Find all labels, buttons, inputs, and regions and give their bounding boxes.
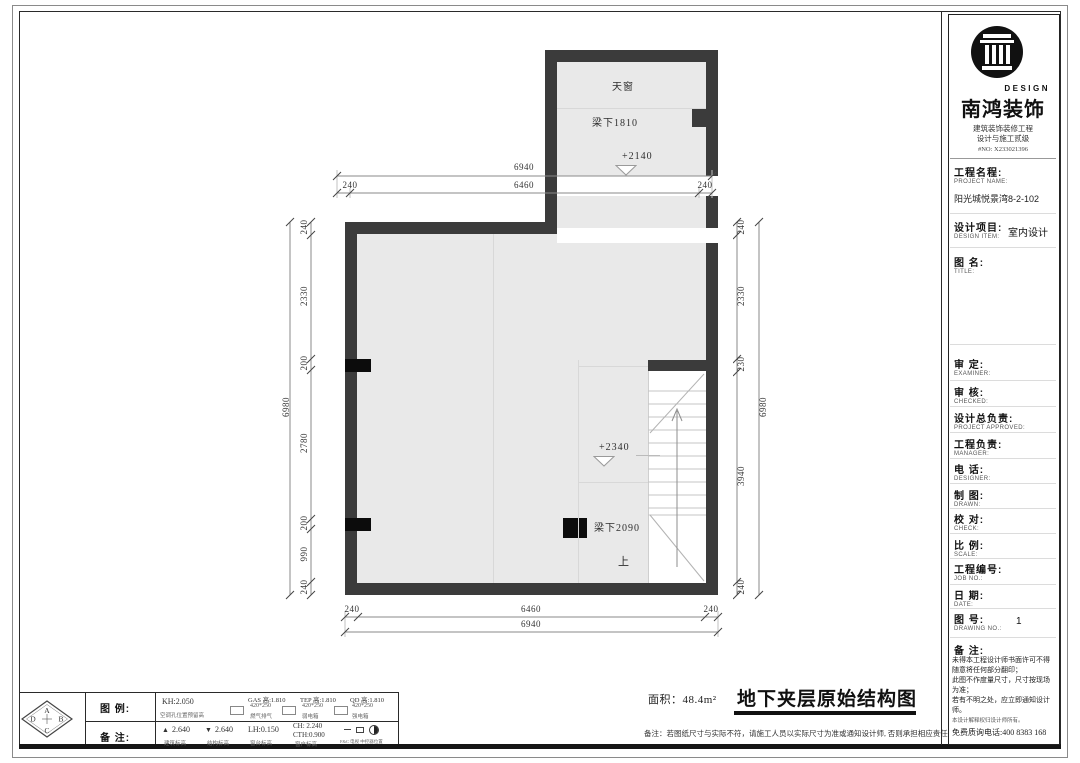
dim-right-seg: 2330 — [736, 276, 746, 316]
wall-right — [706, 50, 718, 595]
remarks-fine-print: 本设计解释权归设计师所有。 — [952, 716, 1024, 724]
dim-top-seg: 240 — [330, 180, 370, 190]
tb-label: 电 话: — [954, 461, 1054, 476]
legend-top-line — [19, 692, 398, 693]
titleblock-separator — [950, 637, 1056, 638]
level-down-icon: ▼ — [205, 726, 212, 734]
tb-row-check: 校 对: CHECK: — [954, 511, 1054, 532]
tb-sub: EXAMINER: — [954, 371, 1054, 377]
tb-row-project: 工程名程: PROJECT NAME: — [954, 164, 1054, 185]
legend-item-gas-sub: 燃气排气 — [250, 712, 272, 720]
legend-item-lvl2-sub: 结构标高 — [207, 739, 229, 747]
tb-sub: TITLE: — [954, 269, 1054, 275]
titleblock-separator — [950, 247, 1056, 248]
legend-v2 — [155, 692, 156, 744]
legend-row2-label: 备 注: — [100, 729, 130, 744]
legend-item-qd-sub: 强电箱 — [352, 712, 369, 720]
level-marker-icon — [593, 456, 615, 467]
column-block-2 — [345, 518, 371, 531]
dim-top-seg: 240 — [685, 180, 725, 190]
legend-item-gas-size: 420*250 — [250, 703, 271, 709]
skylight-label: 天窗 — [612, 78, 634, 93]
gas-meter-icon — [230, 706, 244, 715]
legend-item-ch-sub: 窗户标高 — [295, 740, 317, 748]
tb-row-checked: 审 核: CHECKED: — [954, 384, 1054, 405]
dim-top-total: 6940 — [484, 162, 564, 172]
compass-letter-s: C — [44, 726, 49, 735]
tb-label: 图 名: — [954, 254, 1054, 269]
stair-zone-line-h — [578, 366, 648, 367]
tb-label: 备 注: — [954, 642, 1054, 657]
level-marker-mid — [593, 456, 615, 467]
dim-left-total: 6980 — [281, 387, 291, 427]
footer-note: 备注：若图纸尺寸与实际不符，请施工人员以实际尺寸为准或通知设计师, 否则承担相应… — [644, 728, 948, 739]
legend-item-cth: CTH:0.900 — [293, 731, 325, 739]
switch-icon — [344, 729, 351, 730]
compass-letter-e: B — [58, 715, 63, 724]
dim-left-seg: 2780 — [299, 423, 309, 463]
remarks-text: 未得本工程设计师书面许可不得 随意将任何部分翻印； 此图不作度量尺寸，尺寸按现场… — [952, 656, 1056, 716]
legend-item-tep-sub: 弱电箱 — [302, 712, 319, 720]
tb-label: 日 期: — [954, 587, 1054, 602]
tb-label: 工程编号: — [954, 561, 1054, 576]
tb-row-remarks: 备 注: — [954, 642, 1054, 657]
tb-row-manager: 工程负责: MANAGER: — [954, 436, 1054, 457]
landing-line-h — [578, 482, 648, 483]
titleblock-separator — [950, 458, 1056, 459]
tb-label: 校 对: — [954, 511, 1054, 526]
tb-label: 图 号: — [954, 611, 1054, 626]
titleblock-separator — [950, 558, 1056, 559]
cert-line2: 设计与施工贰级 — [950, 133, 1056, 144]
tb-label: 审 核: — [954, 384, 1054, 399]
compass-letter-w: D — [30, 715, 36, 724]
tb-row-project-approved: 设计总负责: PROJECT APPROVED: — [954, 410, 1054, 431]
logo-design-text: DESIGN — [994, 84, 1050, 93]
dim-right-seg: 3940 — [736, 456, 746, 496]
logo-circle — [971, 26, 1023, 78]
legend-item-lvl1: 2.640 — [172, 725, 190, 734]
project-name-value: 阳光城悦景湾8-2-102 — [954, 192, 1039, 205]
level-mid-label: +2340 — [599, 442, 630, 453]
legend-item-lvl1-sub: 建筑标高 — [164, 739, 186, 747]
stair-stub-wall — [648, 360, 706, 371]
legend-item-lvl2: 2.640 — [215, 725, 233, 734]
design-item-value: 室内设计 — [1008, 224, 1048, 239]
dim-bottom-seg: 240 — [332, 604, 372, 614]
dim-top-seg: 6460 — [484, 180, 564, 190]
legend-item-kh-sub: 空调孔位置预留高 — [160, 711, 204, 719]
tb-row-title: 图 名: TITLE: — [954, 254, 1054, 275]
tb-label: 工程名程: — [954, 164, 1054, 179]
wall-upper-left — [545, 50, 557, 234]
titleblock-separator — [950, 380, 1056, 381]
company-name: 南鸿装饰 — [950, 93, 1056, 122]
weak-power-box-icon — [282, 706, 296, 715]
titleblock-separator — [950, 432, 1056, 433]
tb-sub: PROJECT NAME: — [954, 179, 1054, 185]
titleblock-separator — [950, 213, 1056, 214]
partition-line-v2 — [578, 360, 579, 583]
legend-item-lh: LH:0.150 — [248, 725, 279, 734]
dim-bottom-seg: 6460 — [491, 604, 571, 614]
tb-row-date: 日 期: DATE: — [954, 587, 1054, 608]
strong-power-box-icon — [334, 706, 348, 715]
opening-band-2 — [557, 228, 718, 243]
tb-sub: CHECK: — [954, 526, 1054, 532]
wall-top — [545, 50, 718, 62]
legend-right-line — [398, 692, 399, 744]
titleblock-separator — [950, 406, 1056, 407]
dim-right-seg: 240 — [736, 207, 746, 247]
titleblock-separator — [950, 344, 1056, 345]
stair-up-label: 上 — [618, 553, 630, 569]
dim-bottom-seg: 240 — [691, 604, 731, 614]
titleblock-separator — [950, 483, 1056, 484]
compass-icon: A B C D — [21, 700, 73, 738]
tb-label: 设计总负责: — [954, 410, 1054, 425]
column-logo-icon — [980, 33, 1014, 71]
legend-mid-line — [85, 721, 398, 722]
drawing-title-underline — [734, 711, 916, 715]
dim-right-seg: 230 — [736, 344, 746, 384]
dim-left-seg: 240 — [299, 207, 309, 247]
staircase-icon — [648, 371, 706, 583]
wall-protrusion — [692, 108, 706, 127]
dim-left-seg: 2330 — [299, 276, 309, 316]
controller-icon — [369, 725, 379, 735]
dim-right-seg: 240 — [736, 567, 746, 607]
tb-sub: JOB NO.: — [954, 576, 1054, 582]
service-phone: 免费质询电话:400 8383 168 — [952, 727, 1046, 738]
compass-letter-n: A — [44, 706, 50, 715]
wall-bottom — [345, 583, 718, 595]
tb-sub: CHECKED: — [954, 399, 1054, 405]
titleblock-separator — [950, 608, 1056, 609]
tb-sub: PROJECT APPROVED: — [954, 425, 1054, 431]
drawing-sheet: 天窗 梁下1810 +2140 +2340 梁下2090 上 — [0, 0, 1080, 763]
beam-block — [563, 518, 587, 538]
tb-row-drawn: 制 图: DRAWN: — [954, 487, 1054, 508]
legend-item-qd-size: 420*250 — [352, 703, 373, 709]
tb-row-job-no: 工程编号: JOB NO.: — [954, 561, 1054, 582]
beam-line-upper — [557, 108, 706, 109]
dim-right-total: 6980 — [758, 387, 768, 427]
tb-sub: DESIGNER: — [954, 476, 1054, 482]
tb-row-scale: 比 例: SCALE: — [954, 537, 1054, 558]
cert-no: #NO: X233021396 — [950, 146, 1056, 153]
tb-label: 制 图: — [954, 487, 1054, 502]
tb-sub: DRAWING NO.: — [954, 626, 1054, 632]
wall-main-top — [345, 222, 557, 234]
compass: A B C D — [21, 700, 73, 738]
legend-row1-label: 图 例: — [100, 700, 130, 715]
area-label: 面积：48.4m² — [648, 691, 717, 707]
level-leader-line — [636, 455, 660, 456]
titleblock-separator — [950, 158, 1056, 159]
legend-item-kh: KH:2.050 — [162, 697, 194, 706]
titleblock-separator — [950, 584, 1056, 585]
legend-item-tep-size: 420*250 — [302, 703, 323, 709]
titleblock-separator — [950, 533, 1056, 534]
beam-mid-label: 梁下2090 — [594, 519, 640, 534]
dim-left-seg: 240 — [299, 567, 309, 607]
socket-icon — [356, 727, 364, 733]
tb-label: 比 例: — [954, 537, 1054, 552]
tb-sub: MANAGER: — [954, 451, 1054, 457]
tb-row-drawing-no: 图 号: DRAWING NO.: — [954, 611, 1054, 632]
tb-row-designer: 电 话: DESIGNER: — [954, 461, 1054, 482]
dim-bottom-total: 6940 — [491, 619, 571, 629]
tb-label: 审 定: — [954, 356, 1054, 371]
dim-left-seg: 200 — [299, 343, 309, 383]
level-up-icon: ▲ — [162, 726, 169, 734]
legend-item-ch: CH: 2.240 — [293, 722, 322, 730]
titleblock-divider — [941, 11, 942, 745]
drawing-no-value: 1 — [1016, 616, 1022, 627]
column-block-1 — [345, 359, 371, 372]
legend-v1 — [85, 692, 86, 744]
partition-line-v1 — [493, 234, 494, 583]
legend-item-lh-sub: 窗台标高 — [250, 739, 272, 747]
drawing-title: 地下夹层原始结构图 — [737, 684, 917, 711]
beam-top-label: 梁下1810 — [592, 114, 638, 129]
wall-main-left — [345, 222, 357, 595]
tb-label: 工程负责: — [954, 436, 1054, 451]
staircase — [648, 371, 706, 583]
tb-row-examiner: 审 定: EXAMINER: — [954, 356, 1054, 377]
legend-item-ctrl-sub: F&C 电视 中控器位置 — [340, 739, 383, 745]
titleblock-separator — [950, 508, 1056, 509]
